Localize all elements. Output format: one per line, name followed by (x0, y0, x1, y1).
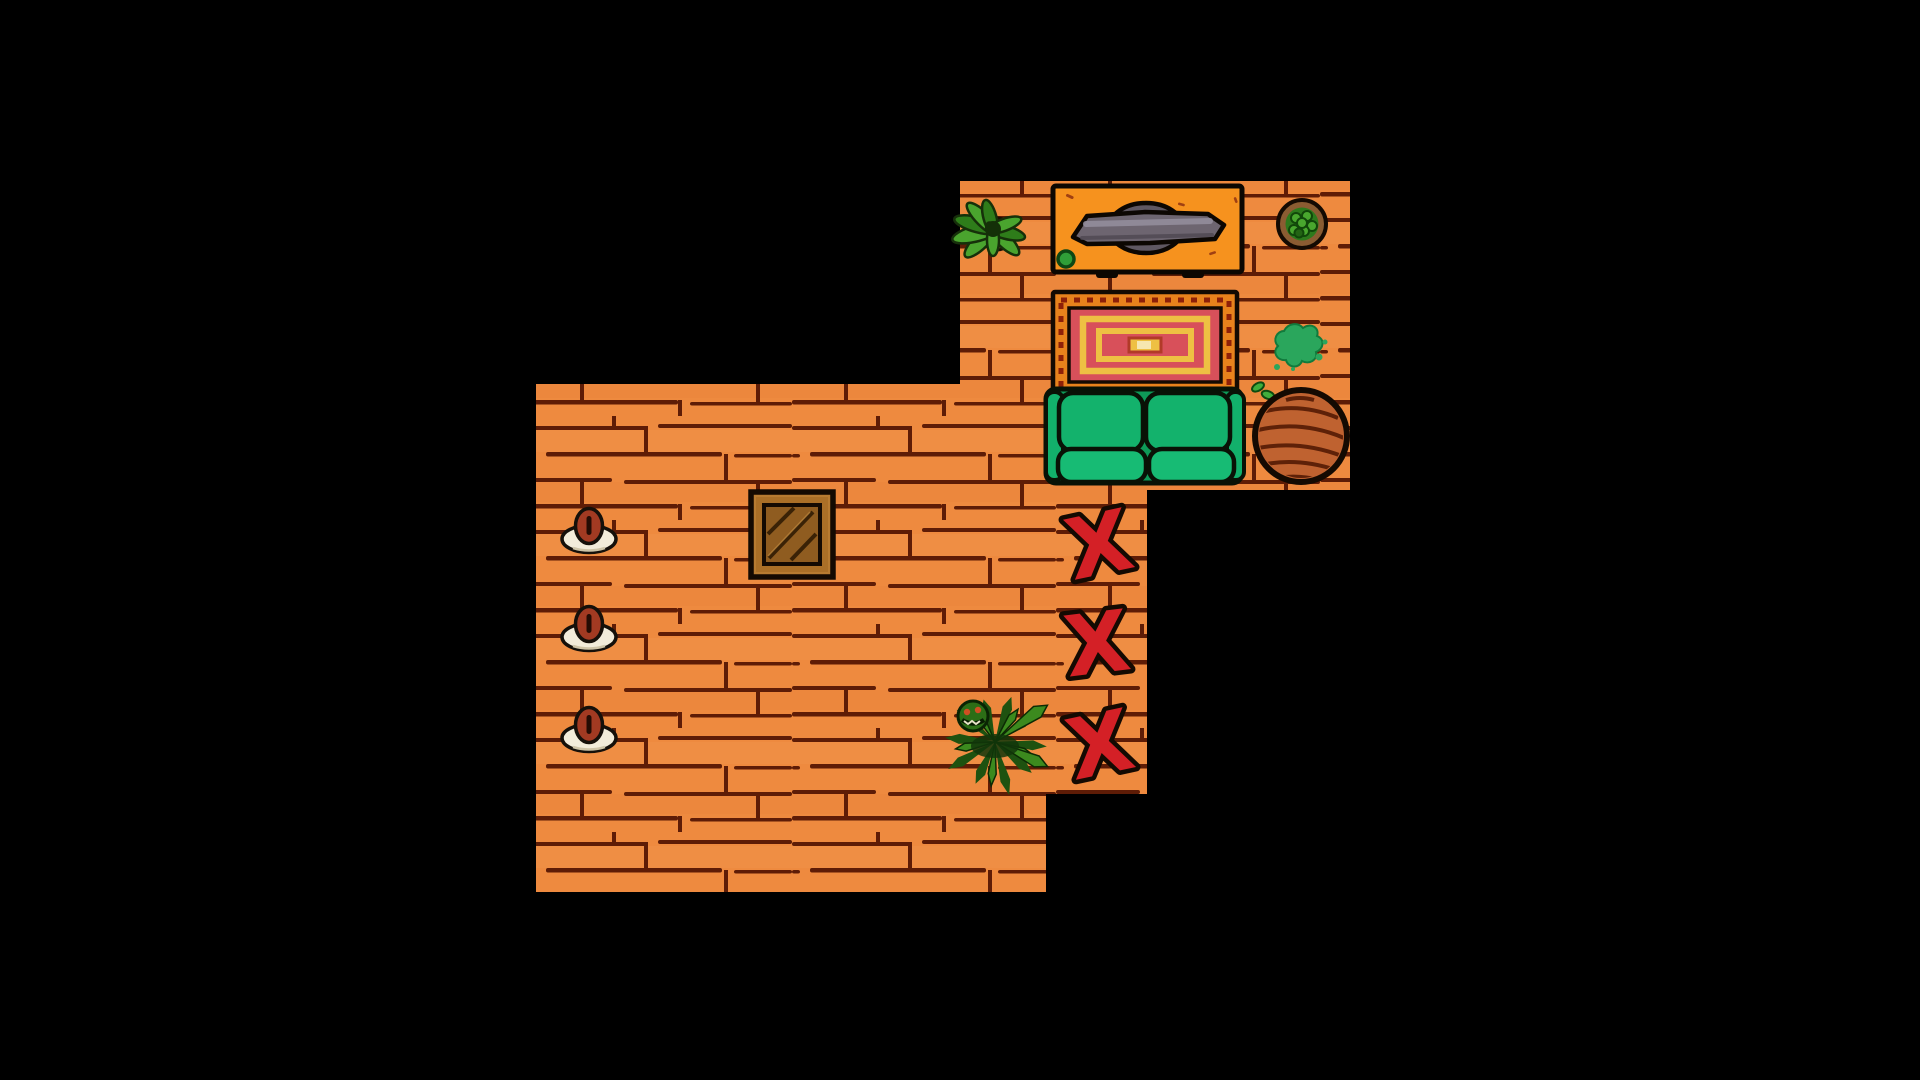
couch-back-cushion-right (1146, 393, 1230, 451)
snap-plant-eye (964, 709, 970, 715)
snap-plant-core (971, 734, 1019, 758)
round-table-top (1255, 390, 1347, 482)
rug-center-dot (1137, 341, 1151, 349)
couch-seat-cushion-left (1058, 449, 1146, 482)
slime-droplet (1316, 354, 1323, 361)
snap-plant-head (958, 701, 988, 731)
rug[interactable] (1053, 292, 1237, 398)
bean-slit (587, 715, 592, 734)
crate[interactable] (751, 492, 833, 577)
x-markers[interactable]: X X X (1057, 490, 1142, 799)
snap-plant-eye (975, 707, 981, 713)
couch-seat-cushion-right (1149, 449, 1234, 482)
scene-canvas: X X X (0, 0, 1920, 1080)
potted-plant[interactable] (1278, 200, 1326, 248)
tv-highlight (1086, 221, 1210, 224)
couch[interactable] (1046, 389, 1244, 483)
x-mark-2[interactable]: X (1059, 591, 1135, 696)
bean-slit (587, 614, 592, 633)
tv-stand-knob[interactable] (1058, 251, 1074, 267)
couch-back-cushion-left (1059, 393, 1143, 451)
round-table[interactable] (1255, 390, 1347, 482)
bean-slit (587, 516, 592, 535)
slime-droplet (1323, 340, 1328, 345)
game-viewport: X X X (0, 0, 1920, 1080)
slime-droplet (1291, 367, 1295, 371)
houseplant-center (985, 221, 1001, 237)
floor[interactable] (536, 181, 1350, 892)
slime-droplet (1274, 364, 1280, 370)
